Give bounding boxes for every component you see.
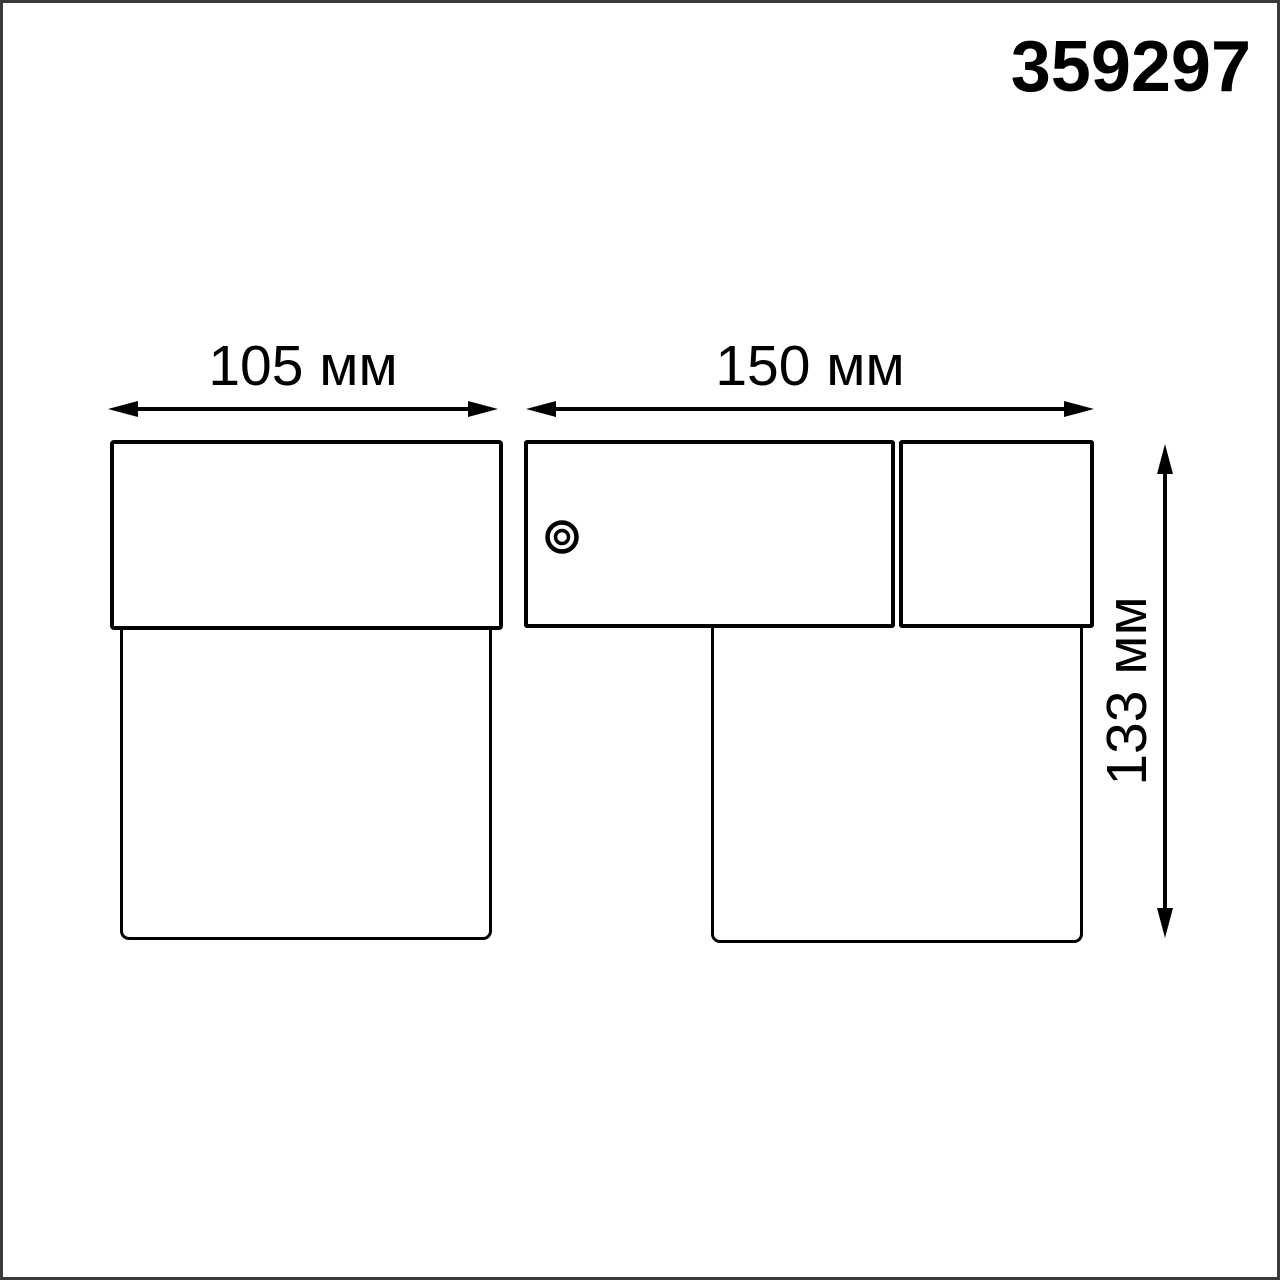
dimension-drawing-page: 359297 105 мм 150 мм 133 мм <box>0 0 1280 1280</box>
dimension-arrow-width-right-icon <box>526 399 1094 419</box>
screw-head-icon <box>541 516 583 558</box>
dimension-label-width-left: 105 мм <box>108 337 498 395</box>
product-code: 359297 <box>1011 31 1251 103</box>
right-view-shade-body <box>711 628 1083 943</box>
right-view-end-cap <box>899 440 1094 628</box>
dimension-label-height: 133 мм <box>1098 596 1156 785</box>
dimension-label-width-right: 150 мм <box>526 337 1094 395</box>
dimension-arrow-width-left-icon <box>108 399 498 419</box>
left-view-mount-body <box>110 440 503 630</box>
left-view-shade-body <box>120 630 492 940</box>
